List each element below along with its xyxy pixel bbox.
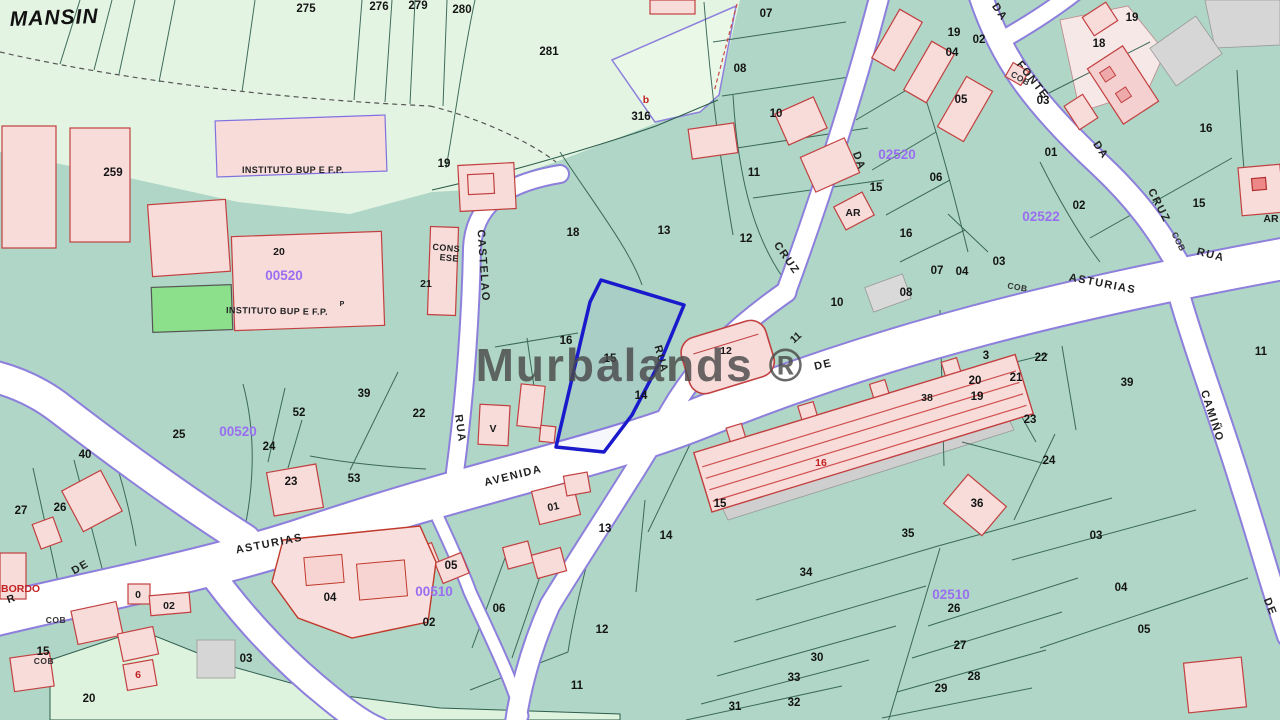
- parcel-number-label: 33: [788, 672, 801, 684]
- building-label: V: [489, 423, 496, 435]
- building: [467, 173, 494, 194]
- parcel-number-label: 14: [660, 530, 673, 542]
- parcel-number-label: 259: [103, 167, 122, 179]
- parcel-number-label: 21: [1010, 372, 1023, 384]
- parcel-number-label: 316: [631, 111, 650, 123]
- building-label: 0: [135, 589, 141, 601]
- parcel-number-label: 25: [173, 429, 186, 441]
- parcel-number-label: 10: [770, 108, 783, 120]
- red-annotation-label: 16: [815, 457, 827, 469]
- parcel-number-label: 12: [740, 233, 753, 245]
- building: [148, 199, 231, 276]
- parcel-number-label: 15: [604, 353, 617, 365]
- parcel-number-label: 36: [971, 498, 984, 510]
- parcel-number-label: 18: [567, 227, 580, 239]
- parcel-number-label: 34: [800, 567, 813, 579]
- zone-code-label: 02510: [932, 587, 970, 602]
- parcel-number-label: 24: [263, 441, 276, 453]
- building: [563, 472, 590, 496]
- parcel-number-label: 08: [734, 63, 747, 75]
- parcel-number-label: 20: [969, 375, 982, 387]
- building-label: AR: [845, 207, 861, 219]
- place-name-label: ESE: [439, 252, 459, 264]
- building-label: 12: [720, 345, 732, 357]
- zone-code-label: 00520: [219, 424, 257, 439]
- parcel-number-label: 12: [596, 624, 609, 636]
- building-green: [151, 285, 233, 333]
- building: [650, 0, 695, 14]
- zone-code-label: 02522: [1022, 209, 1060, 224]
- parcel-number-label: 07: [760, 8, 773, 20]
- parcel-number-label: 16: [900, 228, 913, 240]
- parcel-number-label: 52: [293, 407, 306, 419]
- parcel-number-label: 06: [493, 603, 506, 615]
- parcel-number-label: 13: [658, 225, 671, 237]
- building: [427, 227, 458, 316]
- parcel-number-label: 20: [83, 693, 96, 705]
- parcel-number-label: 14: [635, 390, 648, 402]
- parcel-number-label: 16: [560, 335, 573, 347]
- parcel-number-label: 23: [285, 476, 298, 488]
- building-label: 21: [420, 278, 432, 290]
- parcel-number-label: 281: [539, 46, 559, 58]
- parcel-number-label: 05: [445, 560, 458, 572]
- parcel-number-label: 32: [788, 697, 801, 709]
- parcel-number-label: 19: [1126, 12, 1139, 24]
- zone-code-label: 02520: [878, 147, 916, 162]
- parcel-number-label: 15: [1193, 198, 1206, 210]
- building: [1252, 177, 1267, 190]
- parcel-number-label: 39: [358, 388, 371, 400]
- parcel-number-label: 40: [79, 449, 92, 461]
- parcel-number-label: 275: [296, 3, 316, 15]
- parcel-number-label: 279: [408, 0, 427, 12]
- parcel-number-label: 280: [452, 4, 471, 16]
- parcel-number-label: 26: [948, 603, 961, 615]
- parcel-number-label: 08: [900, 287, 913, 299]
- building: [2, 126, 56, 248]
- parcel-number-label: 22: [413, 408, 426, 420]
- parcel-number-label: 23: [1024, 414, 1037, 426]
- cadastral-map-viewport: 2752762792802813162591918131207081011101…: [0, 0, 1280, 720]
- parcel-number-label: 31: [729, 701, 742, 713]
- building: [1184, 657, 1247, 713]
- parcel-number-label: 03: [240, 653, 253, 665]
- cadastral-map: 2752762792802813162591918131207081011101…: [0, 0, 1280, 720]
- parcel-number-label: 27: [15, 505, 28, 517]
- red-annotation-label: 6: [135, 669, 141, 681]
- parcel-number-label: 11: [571, 680, 584, 692]
- parcel-number-label: 05: [955, 94, 968, 106]
- building-label: AR: [1263, 213, 1279, 225]
- parcel-number-label: 03: [1090, 530, 1103, 542]
- parcel-number-label: 11: [748, 167, 761, 179]
- parcel-number-label: 18: [1093, 38, 1106, 50]
- building-label: 02: [163, 600, 175, 612]
- street-name-label: COB: [34, 656, 54, 666]
- parcel-number-label: 53: [348, 473, 361, 485]
- parcel-number-label: 05: [1138, 624, 1151, 636]
- parcel-number-label: 30: [811, 652, 824, 664]
- building: [517, 384, 545, 428]
- building: [267, 464, 324, 516]
- parcel-number-label: 02: [973, 34, 986, 46]
- building-label: 20: [273, 246, 285, 258]
- building: [688, 123, 738, 159]
- parcel-number-label: 02: [423, 617, 436, 629]
- parcel-number-label: 06: [930, 172, 943, 184]
- red-annotation-label: EBORDO: [0, 583, 40, 595]
- parcel-number-label: 04: [956, 266, 969, 278]
- parcel-number-label: 276: [369, 1, 388, 13]
- parcel-number-label: 04: [324, 592, 337, 604]
- parcel-number-label: 16: [1200, 123, 1213, 135]
- building: [70, 128, 130, 242]
- parcel-number-label: 26: [54, 502, 67, 514]
- parcel-number-label: 11: [1255, 346, 1268, 358]
- parcel-number-label: 39: [1121, 377, 1134, 389]
- building: [539, 425, 556, 442]
- zone-code-label: 00510: [415, 584, 453, 599]
- parcel-number-label: 3: [983, 350, 989, 362]
- parcel-number-label: 19: [948, 27, 961, 39]
- parcel-number-label: 28: [968, 671, 981, 683]
- parcel-number-label: 29: [935, 683, 948, 695]
- parcel-number-label: 35: [902, 528, 915, 540]
- parcel-number-label: 04: [1115, 582, 1128, 594]
- place-name-label: P: [340, 301, 345, 308]
- red-annotation-label: b: [643, 94, 649, 106]
- parcel-number-label: 01: [1045, 147, 1058, 159]
- parcel-number-label: 15: [870, 182, 883, 194]
- parcel-number-label: 10: [831, 297, 844, 309]
- parcel-number-label: 02: [1073, 200, 1086, 212]
- zone-code-label: 00520: [265, 268, 303, 283]
- parcel-number-label: 15: [714, 498, 727, 510]
- place-name-label: MANSIN: [9, 5, 99, 31]
- street-name-label: COB: [46, 615, 66, 625]
- parcel-number-label: 19: [971, 391, 984, 403]
- parcel-number-label: 03: [993, 256, 1006, 268]
- parcel-number-label: 19: [438, 158, 451, 170]
- parcel-number-label: 22: [1035, 352, 1048, 364]
- parcel-number-label: 13: [599, 523, 612, 535]
- building-label: 38: [921, 392, 933, 404]
- parcel-number-label: 24: [1043, 455, 1056, 467]
- parcel-number-label: 07: [931, 265, 944, 277]
- parcel-number-label: 27: [954, 640, 967, 652]
- place-name-label: INSTITUTO BUP E F.P.: [242, 165, 344, 175]
- parcel-number-label: 04: [946, 47, 959, 59]
- place-name-label: INSTITUTO BUP E F.P.: [226, 305, 328, 317]
